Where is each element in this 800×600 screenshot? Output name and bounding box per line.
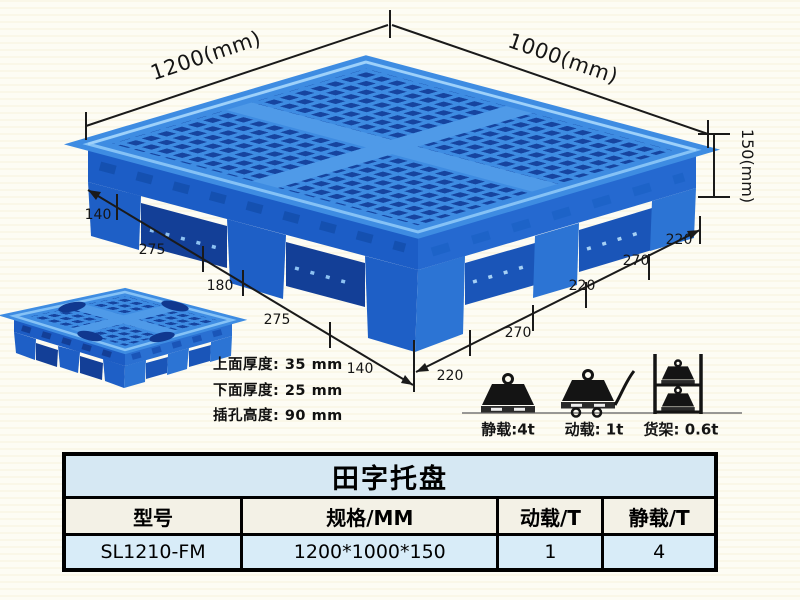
dimension-label: 220 [569, 279, 596, 293]
table-title-row: 田字托盘 [64, 454, 716, 498]
header-model: 型号 [64, 498, 242, 535]
pallet-spec-sheet: 1200(mm) 1000(mm) 150(mm) 140 275 180 27… [0, 0, 800, 600]
dimension-label: 270 [623, 254, 650, 268]
static-load-weight-icon [481, 375, 535, 413]
rack-load-label: 货架: 0.6t [644, 423, 719, 438]
rack-load-icon [655, 354, 701, 414]
spec-bottom-thickness: 下面厚度: 25 mm [213, 379, 343, 400]
dynamic-load-trolley-icon [561, 371, 634, 417]
table-title: 田字托盘 [64, 454, 716, 498]
spec-fork-height: 插孔高度: 90 mm [213, 404, 343, 425]
table-header-row: 型号 规格/MM 动载/T 静载/T [64, 498, 716, 535]
small-pallet-illustration [14, 292, 232, 388]
header-spec: 规格/MM [242, 498, 498, 535]
dynamic-load-label: 动载: 1t [565, 423, 624, 438]
static-load-label: 静载:4t [481, 423, 535, 438]
dimension-label: 220 [666, 233, 693, 247]
spec-table: 田字托盘 型号 规格/MM 动载/T 静载/T SL1210-FM 1200*1… [62, 452, 718, 572]
dimension-label: 220 [437, 369, 464, 383]
cell-static-load: 4 [603, 535, 716, 571]
dimension-label: 275 [264, 313, 291, 327]
cell-model: SL1210-FM [64, 535, 242, 571]
dimension-label: 140 [347, 362, 374, 376]
dimension-label: 270 [505, 326, 532, 340]
spec-top-thickness: 上面厚度: 35 mm [213, 353, 343, 374]
header-dynamic-load: 动载/T [498, 498, 603, 535]
dimension-label: 180 [207, 279, 234, 293]
dimension-label-height: 150(mm) [739, 129, 755, 203]
table-data-row: SL1210-FM 1200*1000*150 1 4 [64, 535, 716, 571]
cell-dynamic-load: 1 [498, 535, 603, 571]
dimension-label: 275 [139, 243, 166, 257]
load-icons [462, 354, 742, 417]
dimension-label: 140 [85, 208, 112, 222]
header-static-load: 静载/T [603, 498, 716, 535]
cell-spec: 1200*1000*150 [242, 535, 498, 571]
